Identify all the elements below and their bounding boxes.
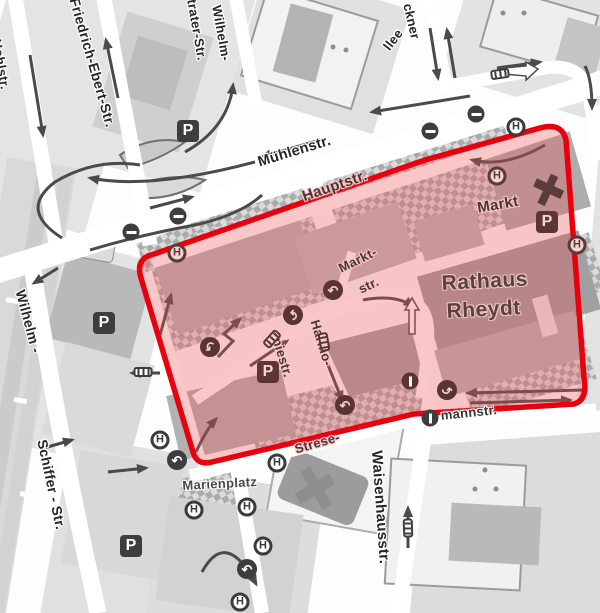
bus-icon bbox=[403, 518, 414, 537]
bus-icon bbox=[134, 367, 153, 377]
bus-stop-icon: H bbox=[168, 244, 187, 263]
one-way-icon bbox=[402, 373, 419, 390]
bus-stop-icon: H bbox=[507, 118, 526, 137]
bus-stop-icon: H bbox=[151, 431, 170, 450]
one-way-icon bbox=[422, 410, 439, 427]
parking-icon: P bbox=[177, 120, 199, 142]
no-entry-icon bbox=[468, 106, 485, 123]
no-entry-icon bbox=[422, 123, 439, 140]
turn-arrow-icon: ↶ bbox=[283, 305, 303, 325]
no-entry-icon bbox=[170, 208, 187, 225]
city-map[interactable]: Hohlstr. Friedrich-Ebert-Str. trater-Str… bbox=[0, 0, 600, 613]
bus-stop-icon: H bbox=[268, 454, 287, 473]
turn-arrow-icon: ↶ bbox=[237, 559, 257, 579]
bus-stop-icon: H bbox=[488, 167, 507, 186]
place-label-rheydt: Rheydt bbox=[446, 296, 521, 324]
parking-icon: P bbox=[93, 312, 115, 334]
turn-arrow-icon: ↶ bbox=[167, 450, 187, 470]
parking-icon: P bbox=[536, 211, 558, 233]
bus-stop-icon: H bbox=[568, 236, 587, 255]
parking-icon: P bbox=[257, 361, 279, 383]
bus-stop-icon: H bbox=[254, 537, 273, 556]
turn-arrow-icon: ↶ bbox=[335, 395, 355, 415]
bus-stop-icon: H bbox=[231, 593, 250, 612]
bus-stop-icon: H bbox=[238, 498, 257, 517]
turn-arrow-icon: ↶ bbox=[323, 280, 343, 300]
turn-arrow-icon: ↶ bbox=[437, 380, 457, 400]
no-entry-icon bbox=[123, 224, 140, 241]
bus-stop-icon: H bbox=[185, 501, 204, 520]
parking-icon: P bbox=[120, 535, 142, 557]
place-label-rathaus: Rathaus bbox=[441, 267, 528, 295]
